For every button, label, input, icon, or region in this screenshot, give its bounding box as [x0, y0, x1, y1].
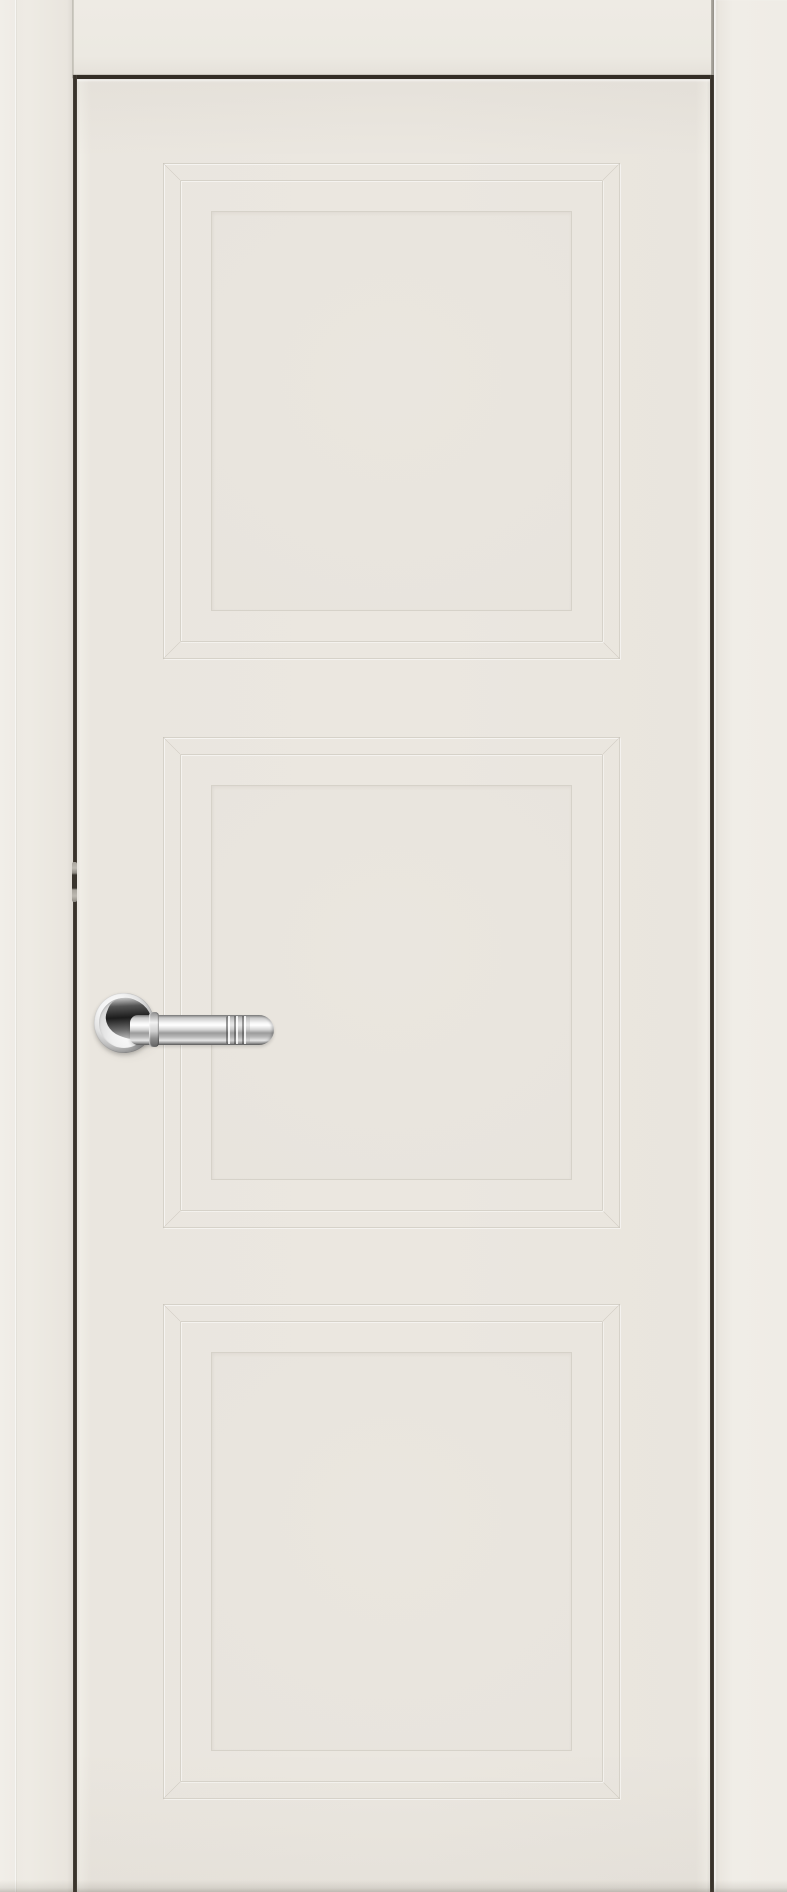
handle-groove-rings	[226, 1016, 250, 1044]
door-frame-left-casing	[0, 0, 73, 1892]
panel-mitre-line	[163, 642, 180, 659]
door-panel-top	[163, 163, 620, 659]
casing-edge-crease	[16, 0, 17, 1892]
panel-mitre-line	[603, 1304, 620, 1321]
panel-mitre-line	[163, 1304, 180, 1321]
panel-mitre-line	[603, 737, 620, 754]
panel-mitre-line	[163, 737, 180, 754]
panel-mitre-line	[163, 163, 180, 180]
panel-mitre-line	[603, 163, 620, 180]
panel-mitre-line	[603, 1211, 620, 1228]
door-gap-left	[73, 75, 77, 1892]
door-gap-right	[710, 75, 714, 1892]
floor-shadow	[0, 1880, 787, 1892]
panel-mitre-line	[603, 642, 620, 659]
panel-mitre-line	[163, 1211, 180, 1228]
panel-mitre-line	[163, 1782, 180, 1799]
door-frame-right-casing	[714, 0, 787, 1892]
door-panel-bottom	[163, 1304, 620, 1799]
hinge	[72, 862, 77, 902]
handle-collar-ring	[149, 1012, 159, 1047]
door-frame-header-casing	[73, 0, 714, 75]
frame-joint-left	[72, 0, 74, 78]
door-product-photo: Product photograph of a closed cream-whi…	[0, 0, 787, 1892]
panel-mitre-line	[603, 1782, 620, 1799]
panel-recessed-field	[212, 1353, 571, 1750]
door-leaf	[77, 79, 710, 1892]
door-panel-middle	[163, 737, 620, 1228]
frame-joint-right	[711, 0, 714, 78]
panel-recessed-field	[212, 786, 571, 1179]
door-gap-top	[73, 75, 712, 79]
panel-recessed-field	[212, 212, 571, 610]
